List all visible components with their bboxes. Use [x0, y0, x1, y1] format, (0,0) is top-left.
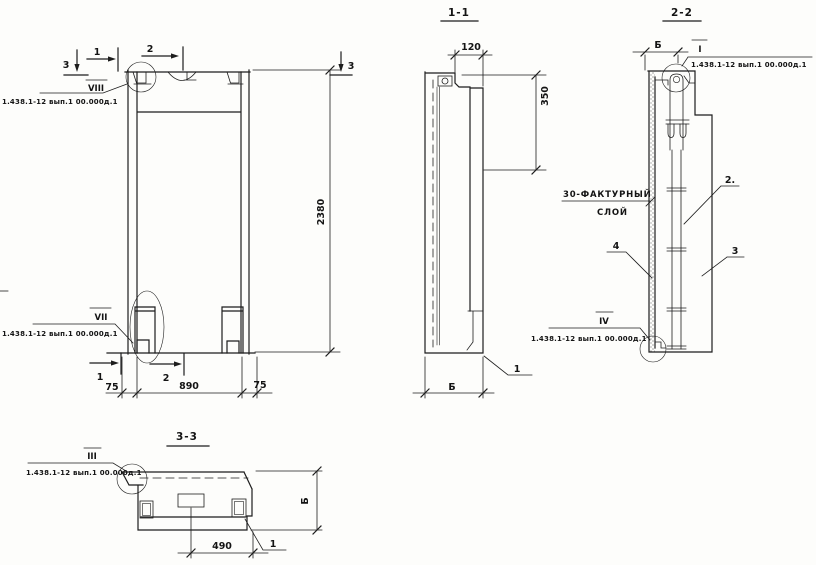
callout-1-section-3-3: 1 [245, 519, 286, 550]
detail-label-viii: VIII [88, 84, 104, 94]
dim-490: 490 [178, 508, 268, 558]
center-recess [178, 494, 204, 507]
front-view: VIII 1.438.1-12 вып.1 00.000д.1 VII 1.43… [0, 44, 354, 398]
section-2-2-body [648, 71, 712, 352]
dim-890: 890 [179, 381, 199, 392]
cut-mark-3-right: 3 [330, 52, 354, 75]
detail-label-iv: IV [599, 317, 609, 327]
textured-layer-fill [650, 72, 656, 352]
dim-120-value: 120 [461, 42, 481, 53]
callout-1-label: 1 [514, 364, 521, 375]
reinforcement-ladder [667, 150, 686, 349]
cut-label-1-bottom: 1 [97, 372, 104, 383]
cut-label-3-right: 3 [348, 61, 355, 72]
cut-label-3-left: 3 [63, 60, 70, 71]
dim-490-value: 490 [212, 541, 232, 552]
detail-label-iii: III [87, 452, 97, 462]
clamp-detail [666, 120, 689, 138]
cut-label-1-top: 1 [94, 47, 101, 58]
note-line2: СЛОЙ [597, 206, 628, 218]
dim-height-value: 2380 [316, 198, 327, 225]
cut-label-2-top: 2 [147, 44, 154, 55]
ref-note-iv: 1.438.1-12 вып.1 00.000д.1 [531, 335, 647, 343]
callout-4-label: 4 [613, 241, 620, 252]
foot-step-1-1 [467, 311, 483, 350]
dim-b-3-3-value: Б [300, 497, 311, 504]
vent-arc [168, 72, 196, 81]
callout-vii: VII 1.438.1-12 вып.1 00.000д.1 [2, 308, 133, 343]
callout-iii: III 1.438.1-12 вып.1 00.000д.1 [26, 448, 142, 477]
front-bottom-recess-left [135, 307, 155, 353]
ref-note-vii: 1.438.1-12 вып.1 00.000д.1 [2, 330, 118, 338]
drawing-sheet: VIII 1.438.1-12 вып.1 00.000д.1 VII 1.43… [0, 0, 816, 565]
textured-layer-note: 30-ФАКТУРНЫЙ СЛОЙ [562, 188, 655, 218]
detail-label-vii: VII [95, 313, 108, 323]
section-1-1-title: 1-1 [448, 7, 470, 19]
dim-b-3-3: Б [251, 467, 322, 534]
section-3-3-body [122, 472, 252, 530]
loop-section-1-1 [438, 76, 452, 86]
section-2-2-title: 2-2 [671, 7, 693, 19]
callout-1-section-1-1: 1 [484, 356, 532, 375]
section-3-3: 3-3 III 1.438.1-12 вып.1 00.000д.1 490 Б [26, 431, 322, 558]
cut-mark-3-left: 3 [63, 50, 88, 75]
cut-mark-2-top: 2 [142, 44, 183, 70]
dim-75-right: 75 [253, 380, 266, 391]
ref-note-i: 1.438.1-12 вып.1 00.000д.1 [691, 61, 807, 69]
callout-i: I 1.438.1-12 вып.1 00.000д.1 [682, 40, 812, 69]
dim-bottom-widths: 75 890 75 [105, 357, 272, 398]
cut-mark-1-top: 1 [87, 47, 118, 71]
note-line1: 30-ФАКТУРНЫЙ [563, 188, 652, 200]
dim-75-left: 75 [105, 382, 118, 393]
dim-b-2-2-value: Б [654, 40, 661, 51]
cut-label-2-bottom: 2 [163, 373, 170, 384]
callout-3-label: 3 [732, 246, 739, 257]
callout-4: 4 [607, 241, 652, 278]
front-bottom-recess-right [222, 307, 243, 353]
dim-b-1-1-value: Б [448, 382, 455, 393]
lifting-loop [670, 74, 683, 150]
dim-350-value: 350 [540, 86, 551, 106]
dim-b-2-2: Б [633, 40, 688, 70]
front-top-notches [133, 72, 243, 84]
section-3-3-title: 3-3 [176, 431, 198, 443]
callout-iv: IV 1.438.1-12 вып.1 00.000д.1 [531, 312, 650, 343]
detail-circle-viii [126, 62, 156, 92]
dim-height-2380: 2380 [253, 66, 340, 356]
detail-label-i: I [698, 45, 701, 55]
ref-note-viii: 1.438.1-12 вып.1 00.000д.1 [2, 98, 118, 106]
callout-2-label: 2. [725, 175, 735, 186]
dim-350: 350 [462, 71, 551, 174]
callout-1-label-3-3: 1 [270, 539, 277, 550]
panel-drawing-canvas: VIII 1.438.1-12 вып.1 00.000д.1 VII 1.43… [0, 0, 816, 565]
section-2-2: 2-2 Б I [531, 7, 812, 362]
callout-3: 3 [702, 246, 744, 276]
cut-mark-1-bottom: 1 [90, 353, 121, 383]
dim-b-1-1: Б [413, 357, 494, 398]
callout-viii: VIII 1.438.1-12 вып.1 00.000д.1 [2, 80, 127, 106]
section-1-1-body [425, 72, 483, 353]
